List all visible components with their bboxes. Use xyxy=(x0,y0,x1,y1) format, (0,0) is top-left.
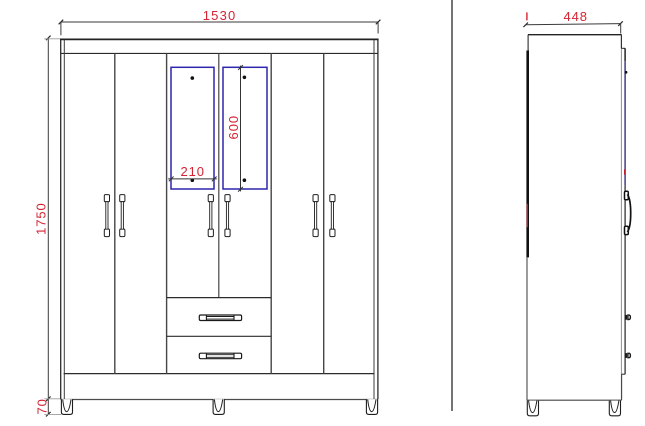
svg-text:1750: 1750 xyxy=(34,202,49,235)
svg-text:210: 210 xyxy=(181,164,205,179)
svg-text:448: 448 xyxy=(564,9,588,24)
svg-text:600: 600 xyxy=(226,115,241,139)
svg-text:1530: 1530 xyxy=(203,8,237,23)
svg-text:70: 70 xyxy=(34,398,49,414)
